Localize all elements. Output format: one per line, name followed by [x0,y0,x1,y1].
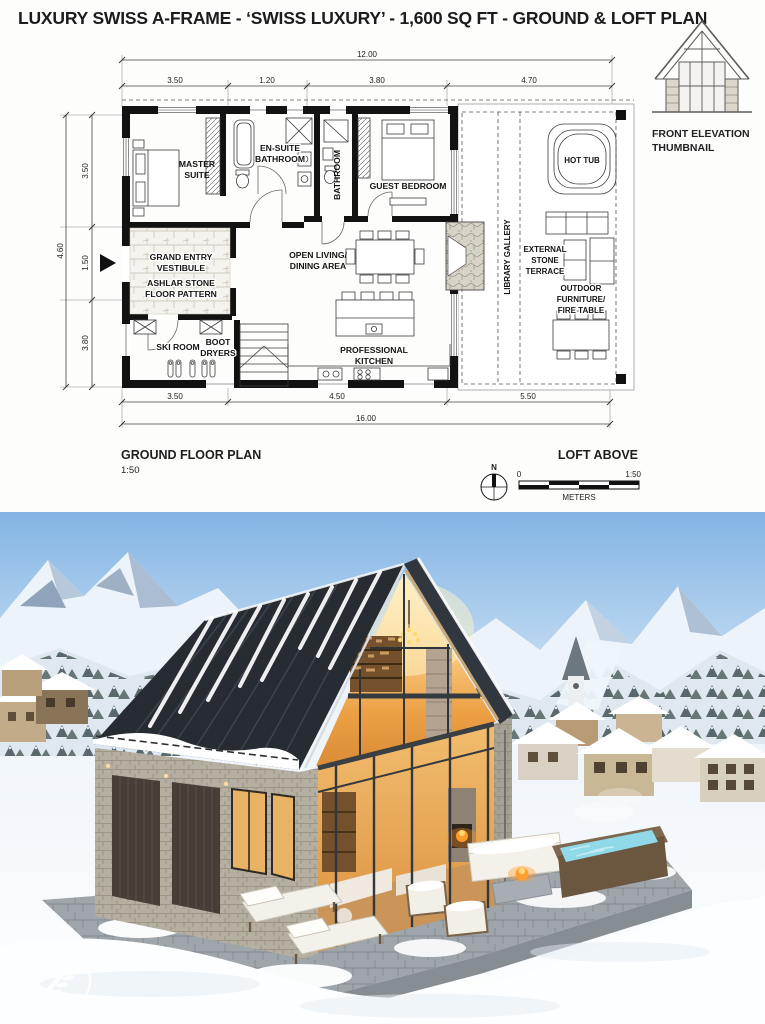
room-label-guest-bedroom: GUEST BEDROOM [370,181,447,191]
room-label-bathroom: BATHROOM [332,150,342,200]
entry-arrow-icon [100,254,116,272]
dimension-label: 4.60 [56,243,65,259]
floor-plan-drawing: 12.00 3.50 1.20 3.80 4.70 4.60 [0,45,765,510]
room-label-outdoor-line1: OUTDOOR [561,284,602,293]
room-label-kitchen-line2: KITCHEN [355,356,393,366]
dining-table-symbol [346,231,424,283]
dimension-label: 3.80 [81,335,90,351]
steam [574,802,634,822]
plan-sheet: LUXURY SWISS A-FRAME - ‘SWISS LUXURY’ - … [0,0,765,512]
room-label-ensuite-line2: BATHROOM [255,154,305,164]
dimension-label: 4.70 [521,76,537,85]
scale-bar-units: METERS [562,493,595,502]
room-label-boot-line1: BOOT [206,337,232,347]
dimension-left: 4.60 3.50 1.50 3.80 [56,112,122,390]
dimension-label: 4.50 [329,392,345,401]
room-label-outdoor-line3: FIRE TABLE [558,306,605,315]
room-label-ski-room: SKI ROOM [156,342,199,352]
scale-bar-ratio: 1:50 [625,470,641,479]
dimension-label: 5.50 [520,392,536,401]
scale-bar: 0 1:50 METERS [517,470,642,502]
dimension-label: 1.50 [81,255,90,271]
terrace-column [616,110,626,120]
room-label-hot-tub: HOT TUB [564,156,600,165]
terrace-column [616,374,626,384]
fireplace-symbol [446,222,484,290]
room-label-master-line2: SUITE [184,170,210,180]
room-label-kitchen-line1: PROFESSIONAL [340,345,408,355]
room-label-ashlar-line1: ASHLAR STONE [147,278,215,288]
loft-above-note: LOFT ABOVE [558,448,638,462]
design-poster: LUXURY SWISS A-FRAME - ‘SWISS LUXURY’ - … [0,0,765,1024]
room-label-terrace-line1: EXTERNAL [523,245,566,254]
dimension-label: 16.00 [356,414,377,423]
compass-north-label: N [491,463,497,472]
dimension-label: 12.00 [357,50,378,59]
dimension-label: 3.50 [167,76,183,85]
compass-north-indicator: N [481,463,507,500]
room-label-ensuite-line1: EN-SUITE [260,143,300,153]
room-label-living-line2: DINING AREA [290,261,347,271]
dimension-bottom: 3.50 4.50 5.50 16.00 [119,388,613,428]
room-label-entry-line1: GRAND ENTRY [150,252,213,262]
plan-scale: 1:50 [121,465,140,476]
chalet-render-illustration: skyryedesign.com [0,512,765,1024]
fire-table-symbol [553,311,609,359]
steam [598,788,642,804]
room-label-library-gallery: LIBRARY GALLERY [503,219,512,295]
dimension-label: 1.20 [259,76,275,85]
room-label-master-line1: MASTER [179,159,216,169]
watermark-url: skyryedesign.com [544,973,748,990]
armchair [406,879,447,916]
plan-footer: GROUND FLOOR PLAN 1:50 LOFT ABOVE N 0 1:… [121,448,642,502]
armchair [444,899,487,936]
room-label-terrace-line3: TERRACE [526,267,565,276]
room-label-living-line1: OPEN LIVING/ [289,250,347,260]
plan-title: GROUND FLOOR PLAN [121,448,261,462]
scale-bar-zero: 0 [517,470,522,479]
room-label-terrace-line2: STONE [531,256,559,265]
kitchen-island-symbol [336,292,414,336]
room-label-outdoor-line2: FURNITURE/ [557,295,606,304]
room-label-entry-line2: VESTIBULE [157,263,205,273]
ski-rack-symbols [168,360,215,377]
room-label-ashlar-line2: FLOOR PATTERN [145,289,217,299]
dimension-top: 12.00 3.50 1.20 3.80 4.70 [119,50,615,106]
dimension-label: 3.50 [167,392,183,401]
poster-title: LUXURY SWISS A-FRAME - ‘SWISS LUXURY’ - … [18,8,707,29]
chalet-render: skyryedesign.com [0,512,765,1024]
stairs-symbol [240,324,288,386]
dimension-label: 3.80 [369,76,385,85]
outdoor-sofa-symbol [546,212,608,234]
dimension-label: 3.50 [81,163,90,179]
room-label-boot-line2: DRYERS [200,348,236,358]
